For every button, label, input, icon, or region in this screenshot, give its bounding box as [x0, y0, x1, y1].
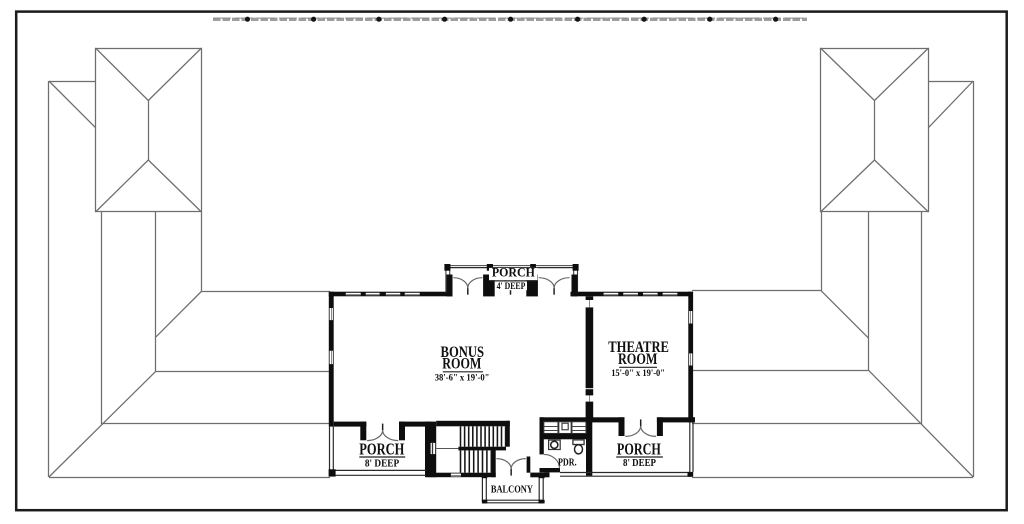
svg-text:PDR.: PDR.	[558, 458, 577, 469]
svg-text:PORCH: PORCH	[492, 266, 535, 280]
svg-text:4' DEEP: 4' DEEP	[497, 281, 526, 291]
svg-text:15'-0" x 19'-0": 15'-0" x 19'-0"	[611, 368, 665, 379]
svg-text:BALCONY: BALCONY	[491, 484, 534, 495]
svg-text:8' DEEP: 8' DEEP	[623, 458, 656, 469]
svg-text:8' DEEP: 8' DEEP	[365, 458, 399, 469]
svg-text:PORCH: PORCH	[359, 440, 404, 459]
svg-text:ROOM: ROOM	[618, 351, 658, 368]
svg-text:ROOM: ROOM	[442, 356, 482, 373]
svg-text:PORCH: PORCH	[617, 440, 661, 459]
svg-text:38'-6" x 19'-0": 38'-6" x 19'-0"	[435, 372, 490, 383]
